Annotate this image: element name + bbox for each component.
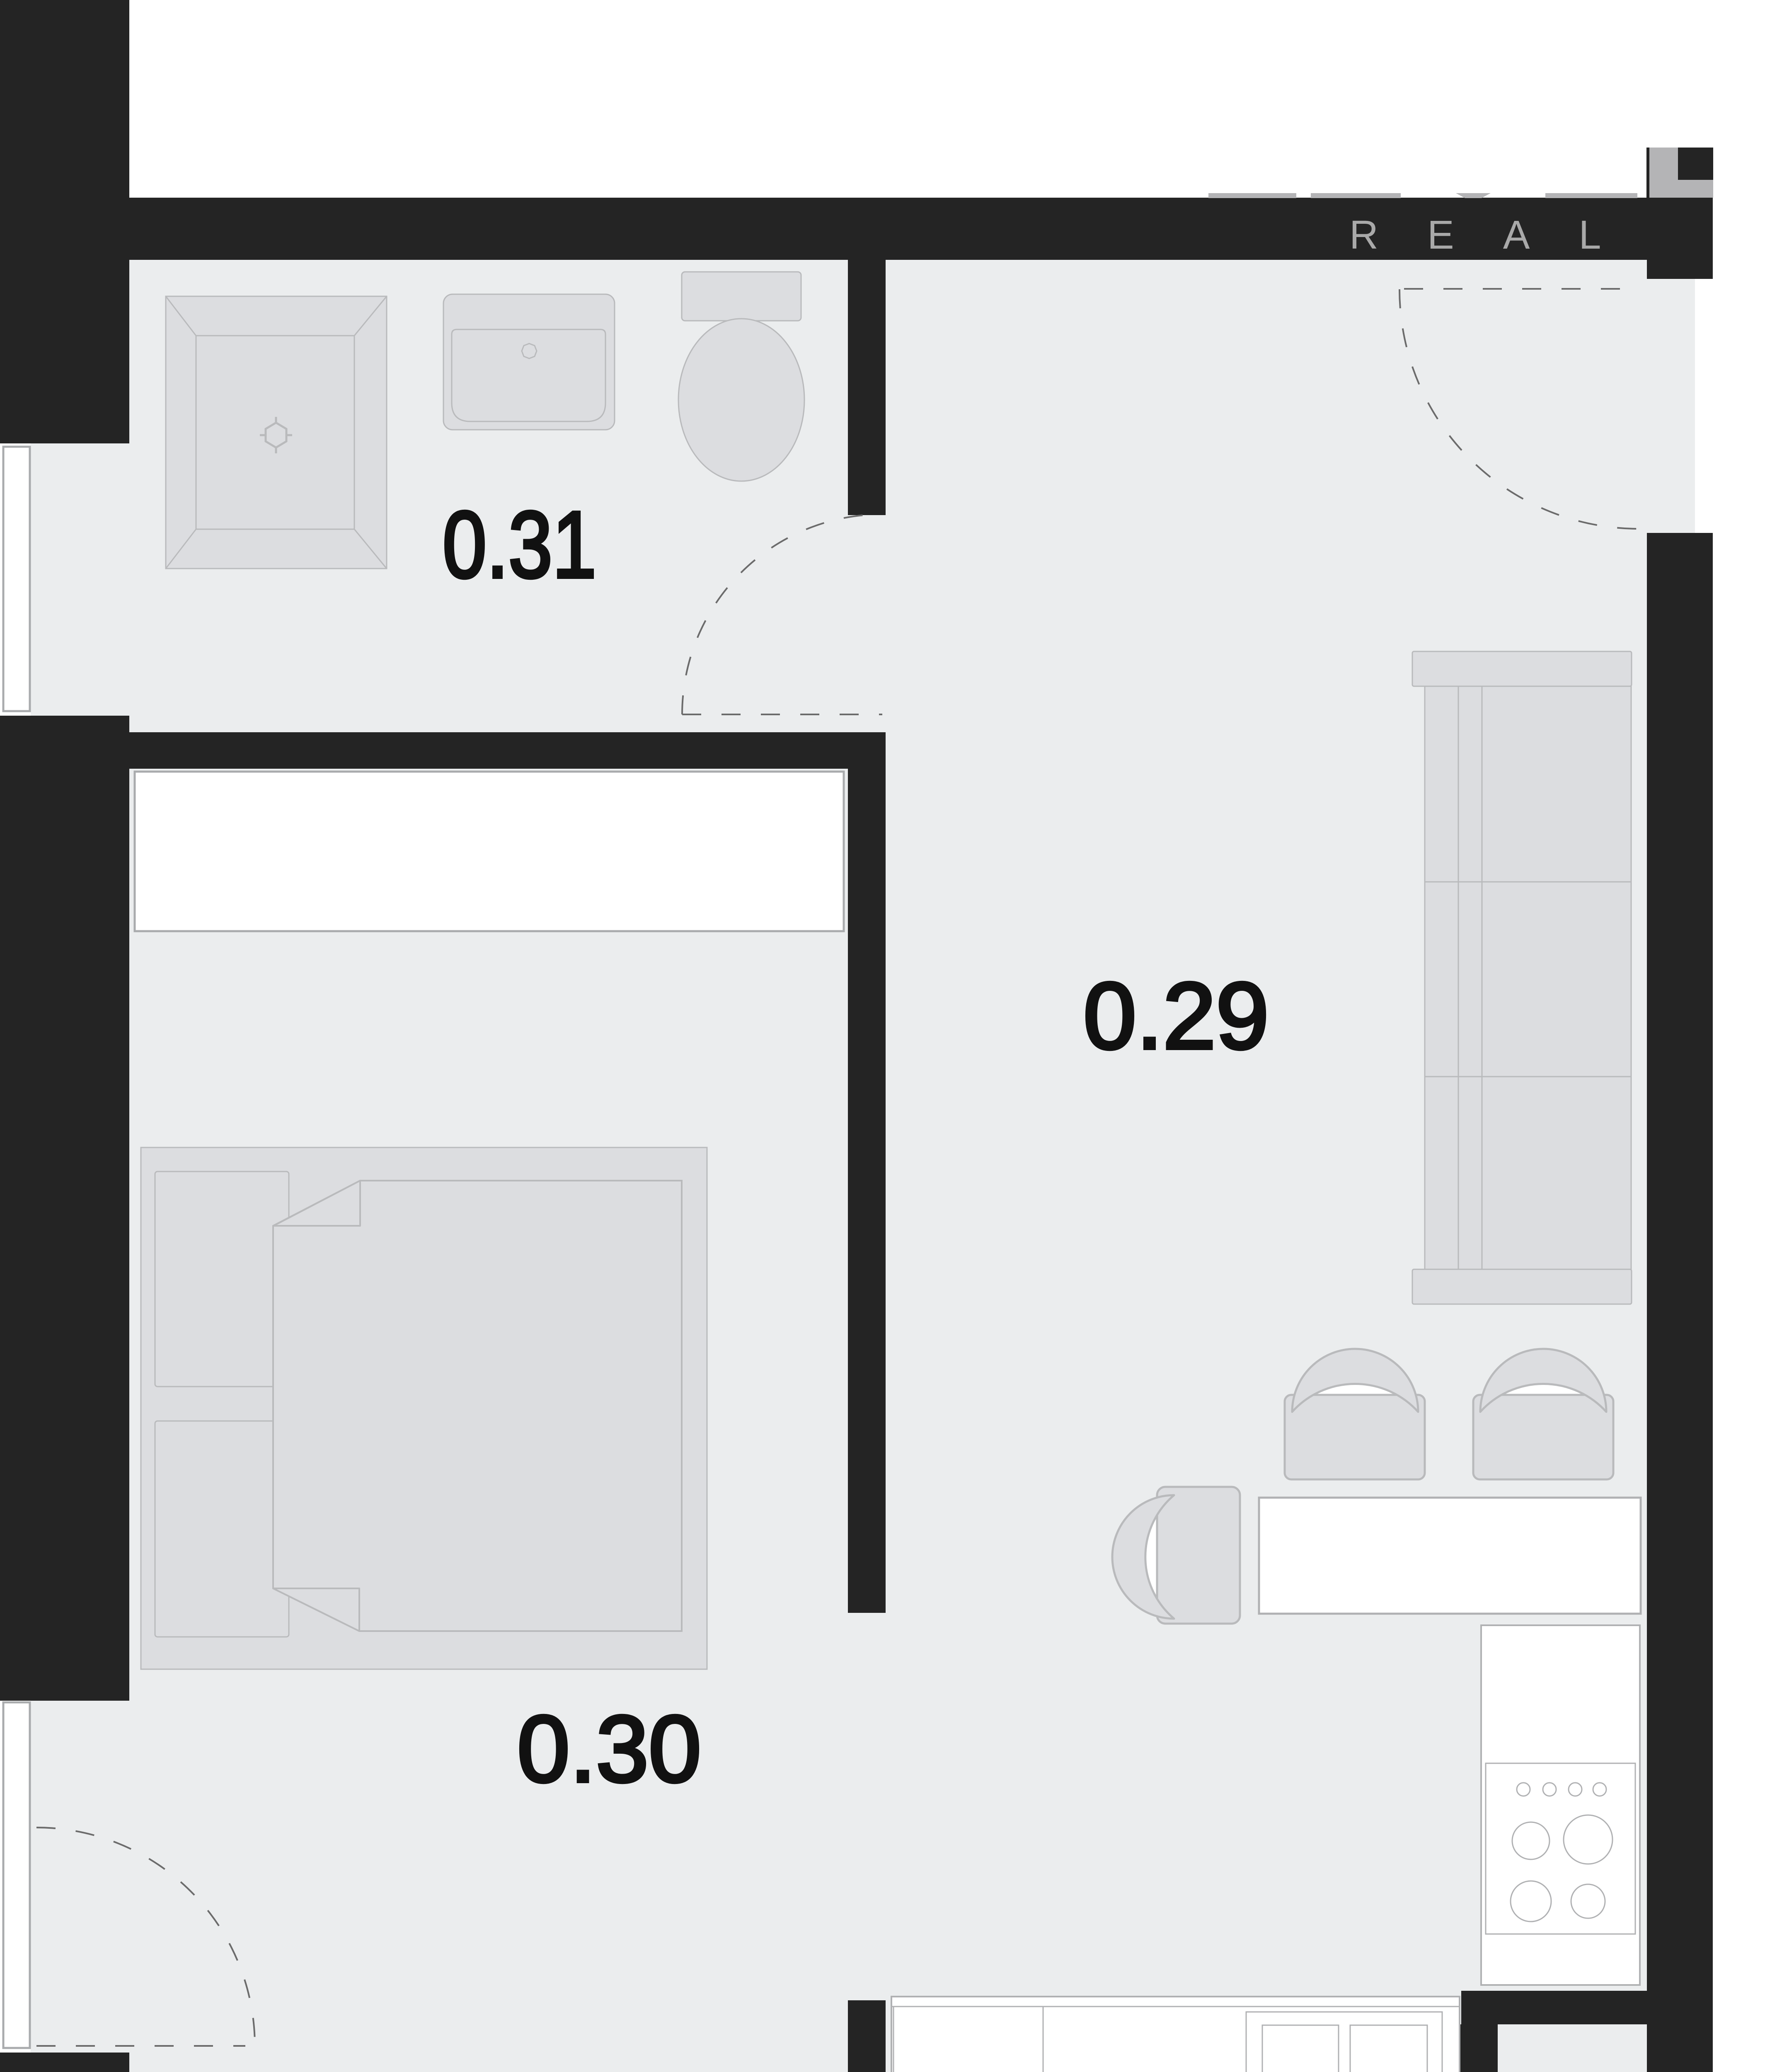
svg-text:0.29: 0.29 (1083, 963, 1269, 1069)
svg-text:0.31: 0.31 (443, 492, 596, 598)
svg-text:REAL: REAL (1349, 212, 1650, 257)
svg-text:0.30: 0.30 (517, 1697, 701, 1802)
